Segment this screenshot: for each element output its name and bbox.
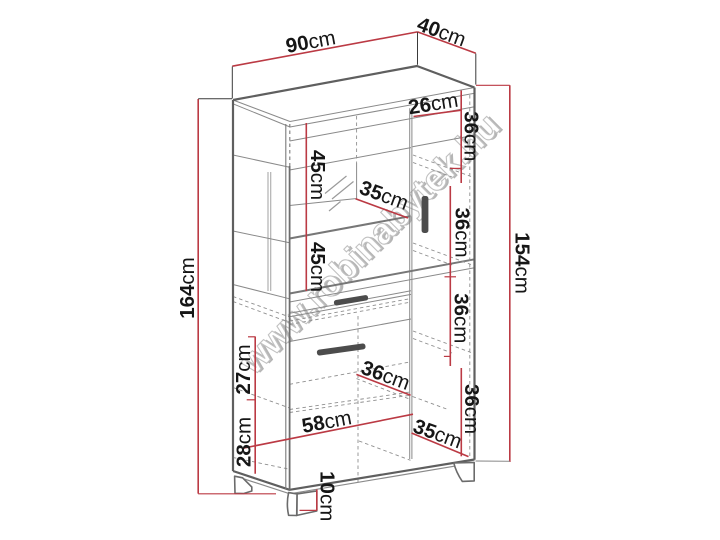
svg-text:27cm: 27cm: [232, 344, 255, 394]
svg-text:36cm: 36cm: [459, 384, 482, 434]
svg-text:36cm: 36cm: [449, 293, 472, 343]
svg-text:36cm: 36cm: [450, 207, 473, 257]
svg-text:36cm: 36cm: [459, 111, 482, 161]
svg-text:28cm: 28cm: [233, 417, 256, 467]
svg-text:10cm: 10cm: [315, 471, 338, 521]
svg-text:164cm: 164cm: [176, 257, 199, 319]
svg-text:154cm: 154cm: [510, 232, 533, 294]
svg-text:45cm: 45cm: [306, 150, 329, 200]
svg-text:45cm: 45cm: [306, 242, 329, 292]
